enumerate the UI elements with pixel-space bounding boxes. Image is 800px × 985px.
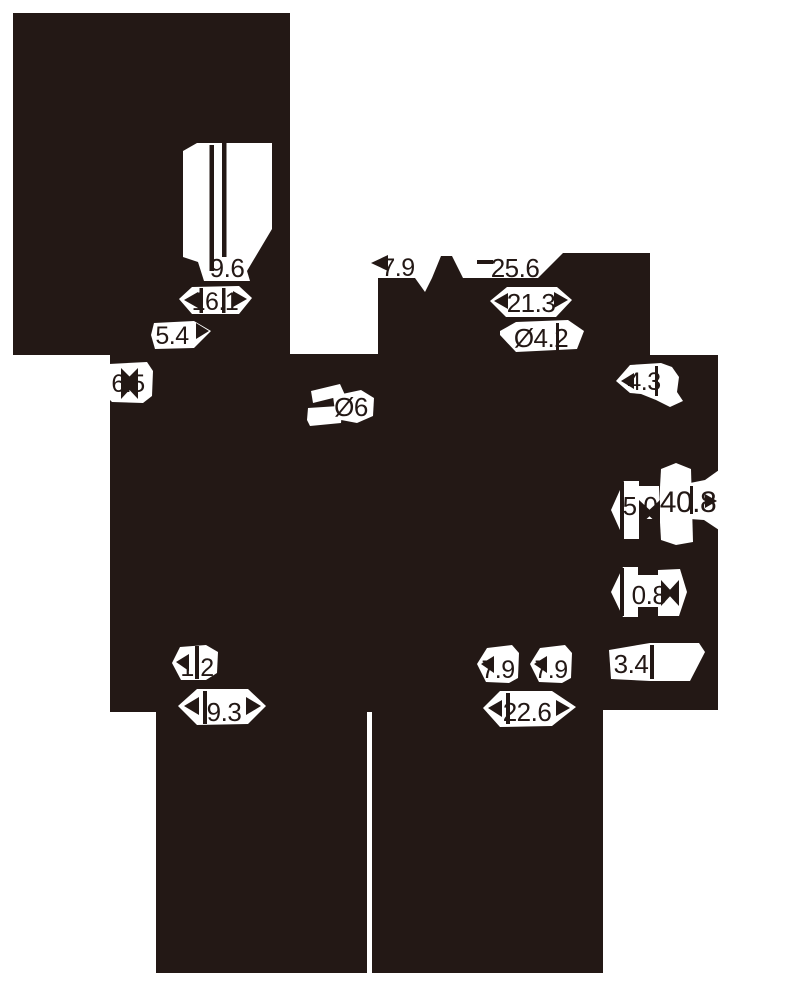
- dim-label-40-8: 40.8: [660, 486, 716, 519]
- dim-label-0-8: 0.8: [632, 580, 667, 610]
- dim-label-dia6: Ø6: [334, 392, 368, 422]
- dim-label-dia4-2: Ø4.2: [514, 323, 568, 353]
- dim-label-1-2: 1.2: [180, 654, 213, 682]
- dim-label-9-6: 9.6: [210, 253, 245, 283]
- dim-label-5-0: 5.0: [623, 491, 658, 521]
- dim-label-5-4: 5.4: [155, 322, 189, 350]
- drawing-svg: 9.6 16.1 5.4 7.9 25.6 21.3 Ø4.2 4.3 6.5 …: [0, 0, 800, 985]
- dim-label-21-3: 21.3: [507, 288, 556, 318]
- slot-divider-line-2: [222, 143, 227, 257]
- dim-label-4-3: 4.3: [627, 368, 660, 396]
- dim-label-7-9-top: 7.9: [381, 254, 414, 282]
- dim-label-16-1: 16.1: [192, 288, 239, 316]
- tick-3-4: [650, 645, 654, 679]
- dim-label-9-3: 9.3: [207, 697, 242, 727]
- silhouette: [13, 13, 718, 973]
- dim-label-7-9-b: 7.9: [534, 656, 567, 684]
- dim-label-7-9-a: 7.9: [481, 656, 514, 684]
- dim-label-25-6: 25.6: [491, 253, 540, 283]
- tick-0-8: [620, 568, 624, 616]
- dim-label-22-6: 22.6: [503, 697, 552, 727]
- dim-label-3-4: 3.4: [614, 649, 649, 679]
- dim-label-6-5: 6.5: [111, 370, 144, 398]
- drawing-canvas: 9.6 16.1 5.4 7.9 25.6 21.3 Ø4.2 4.3 6.5 …: [0, 0, 800, 985]
